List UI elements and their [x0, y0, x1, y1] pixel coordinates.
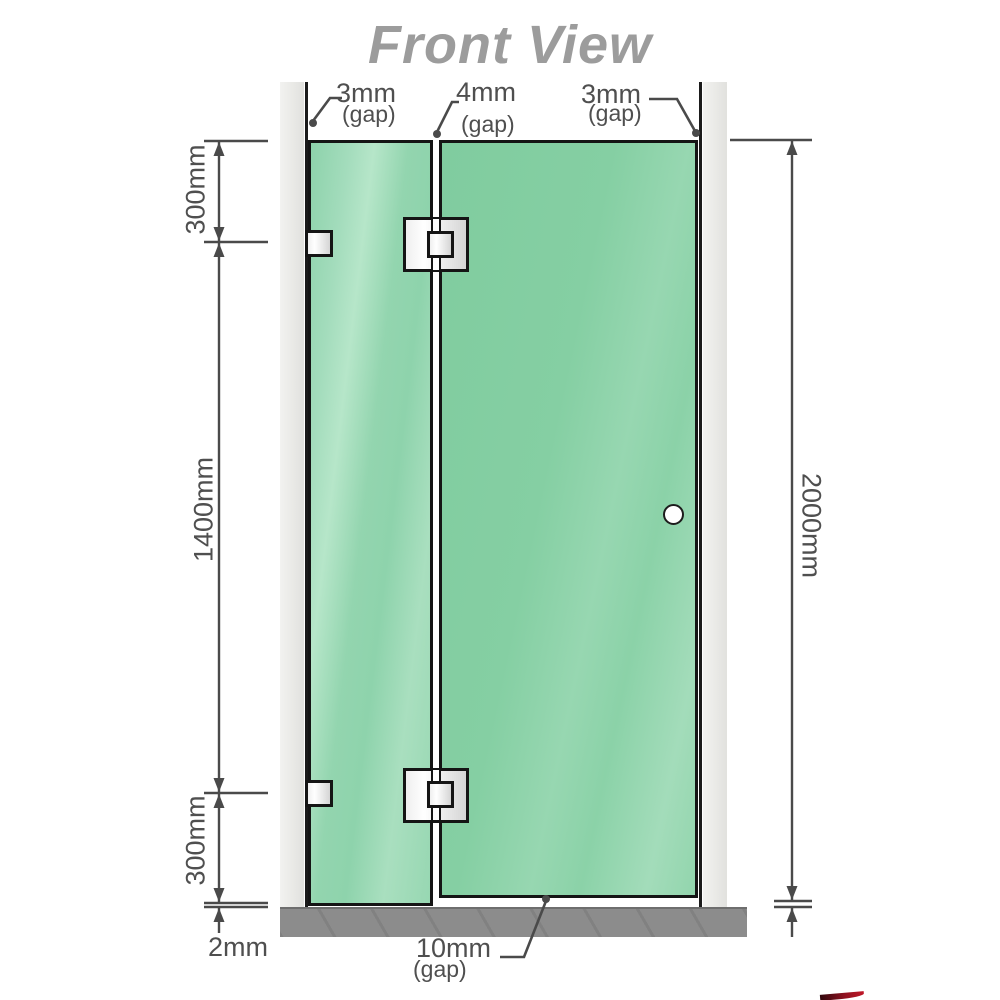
door-glass-panel [439, 140, 698, 898]
right-wall-inner-edge [699, 82, 702, 907]
glass-gap-channel [431, 256, 441, 270]
dim-top-300mm: 300mm [183, 110, 210, 270]
right-wall [703, 82, 727, 907]
floor-bar [280, 907, 747, 937]
gap-note-right: (gap) [588, 102, 642, 125]
gap-label-center-4mm: 4mm [456, 79, 516, 106]
wall-bracket-top [305, 230, 333, 257]
gap-note-left: (gap) [342, 103, 396, 126]
gap-note-center: (gap) [461, 113, 515, 136]
hinge-bottom-knuckle [427, 781, 454, 808]
dim-overall-2000mm: 2000mm [798, 446, 825, 606]
glass-gap-channel [431, 806, 441, 820]
dim-floor-2mm: 2mm [186, 934, 290, 961]
left-wall [280, 82, 304, 907]
hinge-top-knuckle [427, 231, 454, 258]
door-handle-knob [663, 504, 684, 525]
dim-bottom-300mm: 300mm [183, 761, 210, 921]
front-view-diagram: Front View [0, 0, 1000, 1000]
dim-middle-1400mm: 1400mm [191, 430, 218, 590]
wall-bracket-bottom [305, 780, 333, 807]
page-title: Front View [270, 14, 750, 76]
watermark-fragment [820, 991, 864, 1000]
gap-note-door-bottom: (gap) [413, 958, 467, 981]
